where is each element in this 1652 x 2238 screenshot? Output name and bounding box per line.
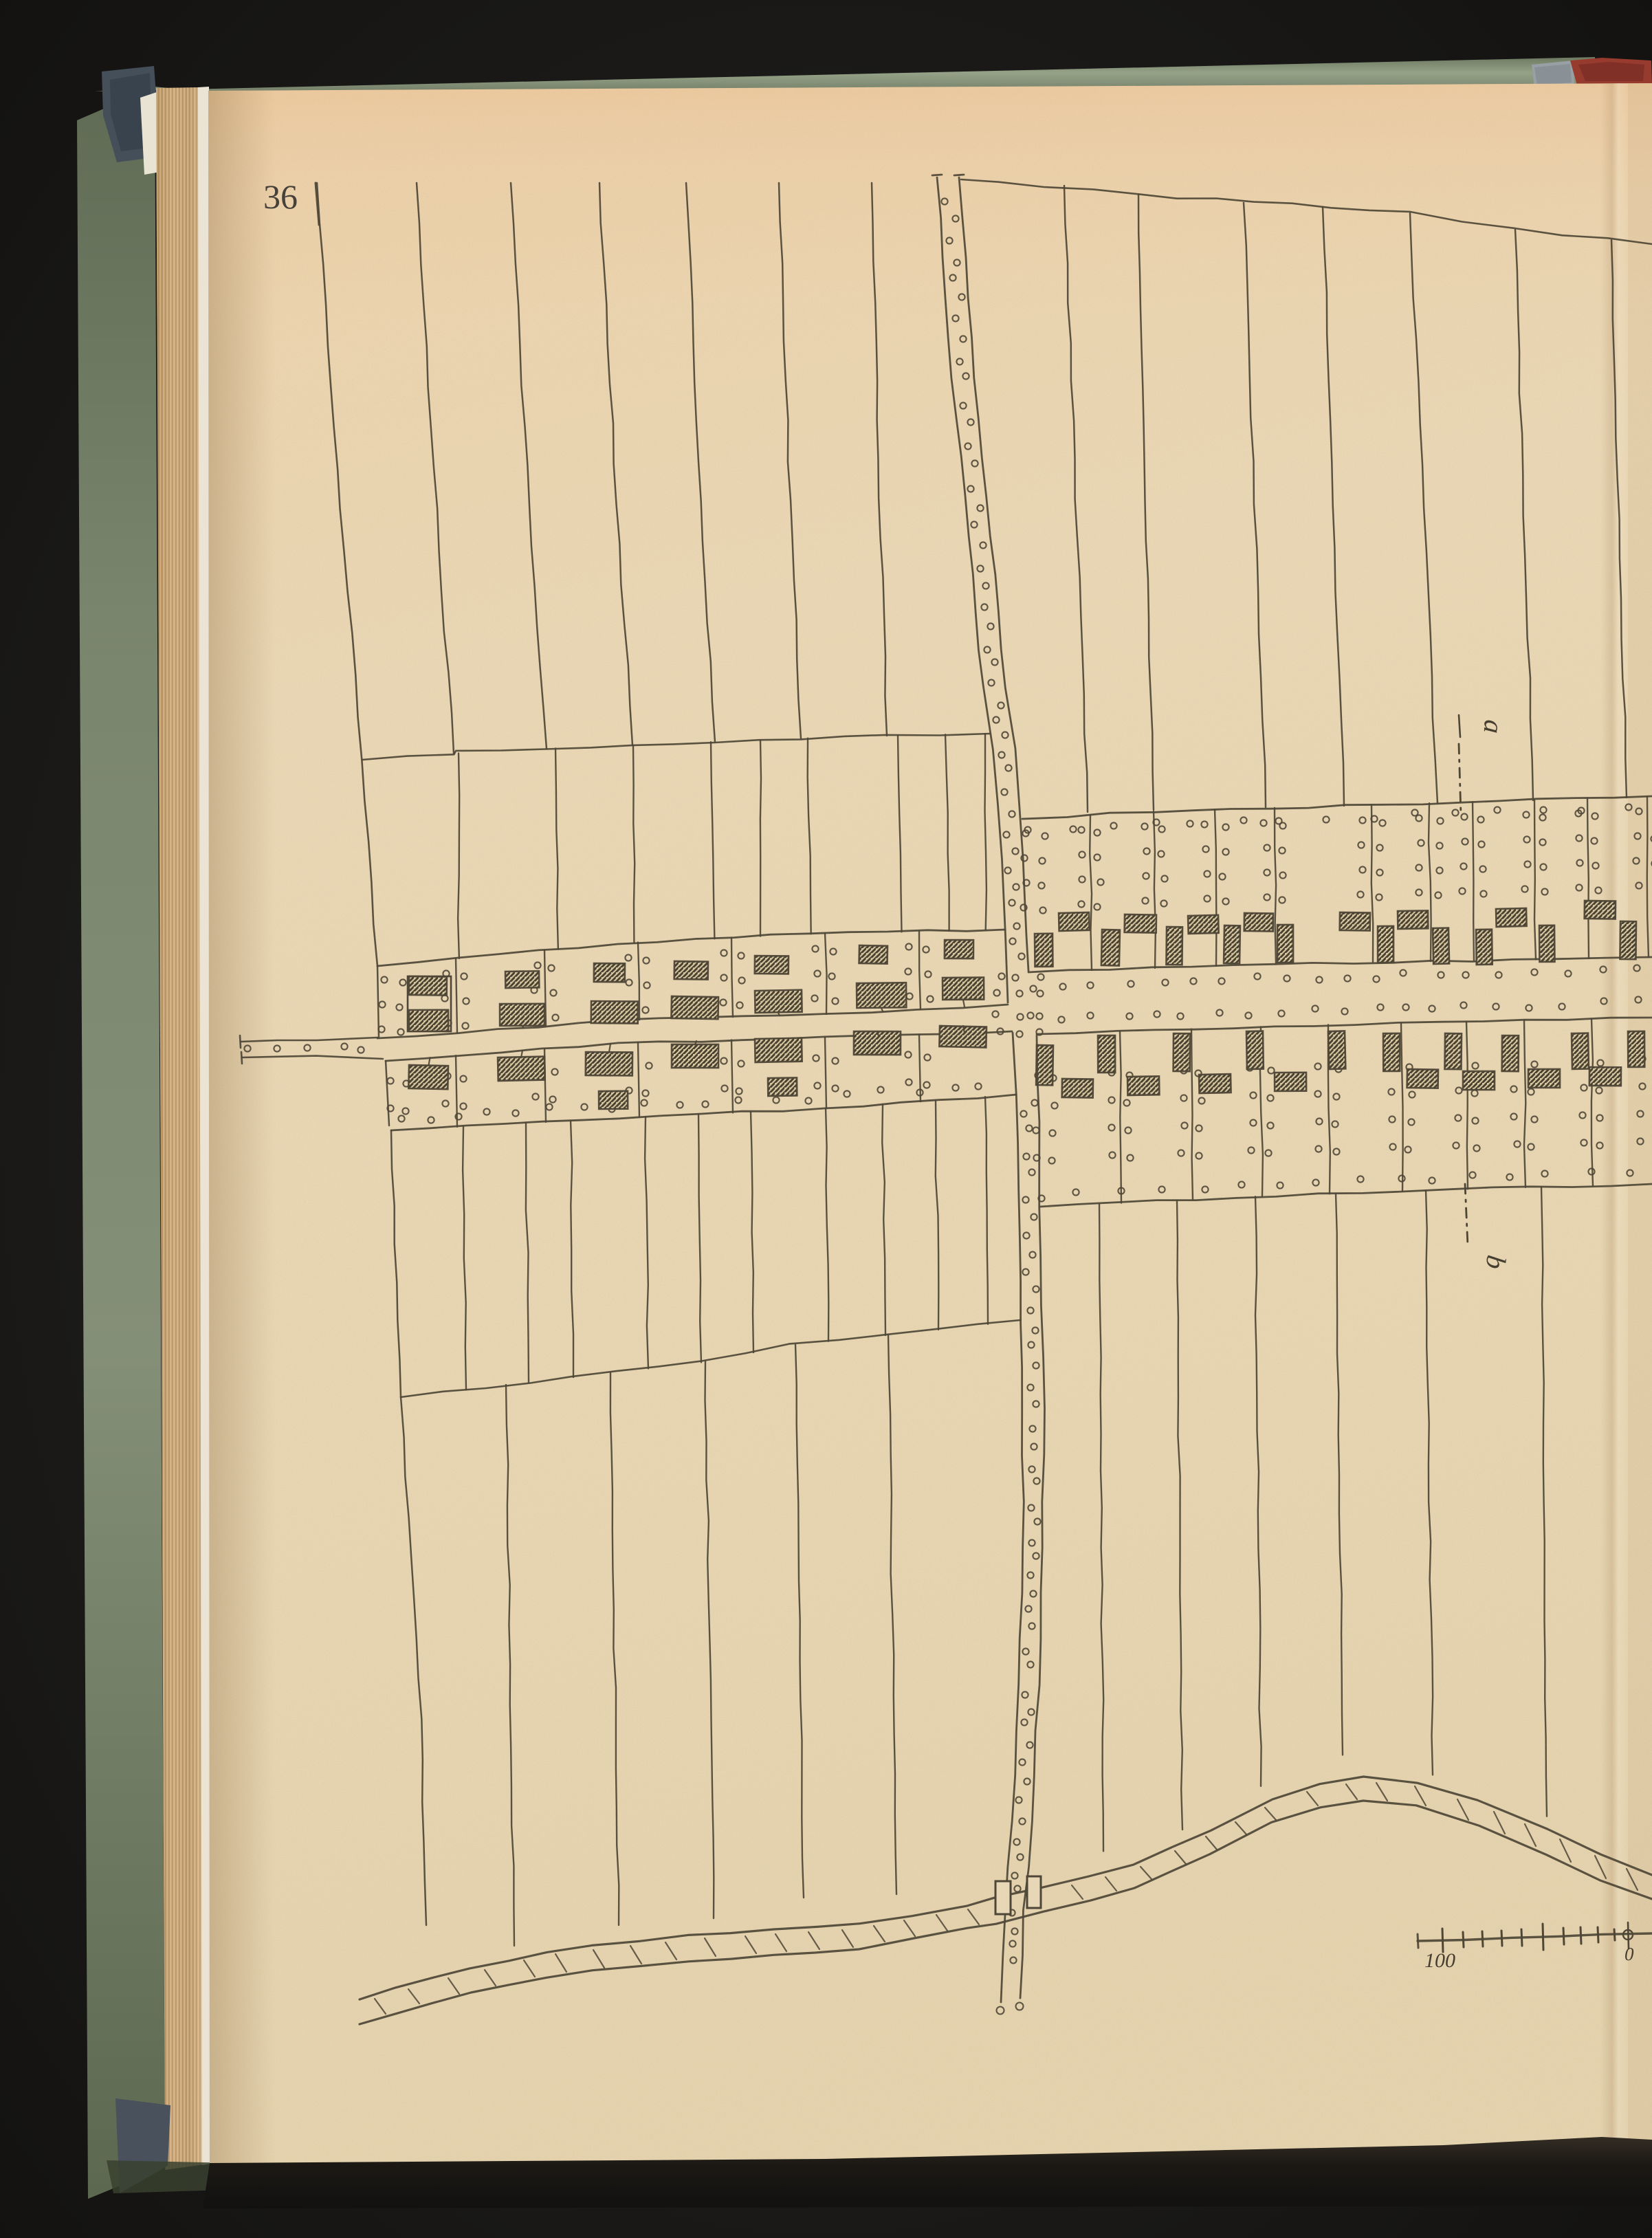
svg-text:a: a xyxy=(1478,718,1510,734)
svg-text:100: 100 xyxy=(1424,1949,1455,1972)
svg-text:0: 0 xyxy=(1625,1944,1634,1964)
svg-text:36: 36 xyxy=(263,177,298,216)
